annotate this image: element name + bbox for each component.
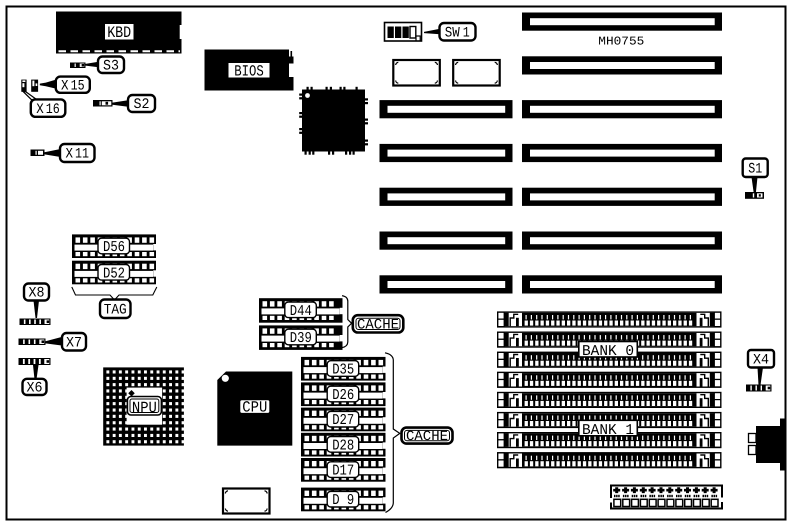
svg-text:X4: X4 — [753, 352, 769, 368]
svg-text:D28: D28 — [332, 437, 354, 454]
svg-text:D52: D52 — [103, 265, 125, 282]
svg-text:D 9: D 9 — [332, 492, 354, 509]
svg-text:TAG: TAG — [104, 302, 127, 318]
svg-text:D44: D44 — [290, 303, 312, 320]
svg-text:S1: S1 — [748, 161, 762, 177]
svg-text:CACHE: CACHE — [357, 317, 399, 333]
svg-text:S3: S3 — [103, 59, 119, 75]
svg-text:BIOS: BIOS — [234, 62, 264, 80]
svg-text:D35: D35 — [332, 362, 354, 379]
svg-text:D39: D39 — [290, 330, 312, 347]
svg-text:CPU: CPU — [242, 399, 267, 417]
svg-text:X7: X7 — [66, 335, 82, 351]
svg-text:D56: D56 — [103, 239, 125, 256]
svg-text:D26: D26 — [332, 387, 354, 404]
svg-text:X: X — [61, 78, 69, 94]
svg-text:X6: X6 — [27, 381, 43, 397]
svg-text:S2: S2 — [134, 97, 150, 113]
svg-text:NPU: NPU — [132, 399, 157, 417]
svg-text:KBD: KBD — [107, 24, 131, 42]
svg-text:X: X — [36, 102, 44, 118]
svg-text:CACHE: CACHE — [406, 429, 448, 445]
svg-text:MH0755: MH0755 — [598, 35, 644, 49]
svg-text:X: X — [65, 147, 73, 163]
svg-text:SW: SW — [445, 25, 460, 41]
svg-text:X8: X8 — [29, 286, 45, 302]
svg-text:D17: D17 — [332, 463, 354, 480]
svg-text:D27: D27 — [332, 412, 354, 429]
svg-text:15: 15 — [71, 78, 85, 94]
svg-text:BANK 0: BANK 0 — [582, 343, 634, 360]
svg-text:1: 1 — [463, 25, 470, 41]
svg-text:11: 11 — [75, 147, 89, 163]
svg-text:BANK 1: BANK 1 — [582, 422, 634, 439]
svg-text:16: 16 — [46, 102, 60, 118]
